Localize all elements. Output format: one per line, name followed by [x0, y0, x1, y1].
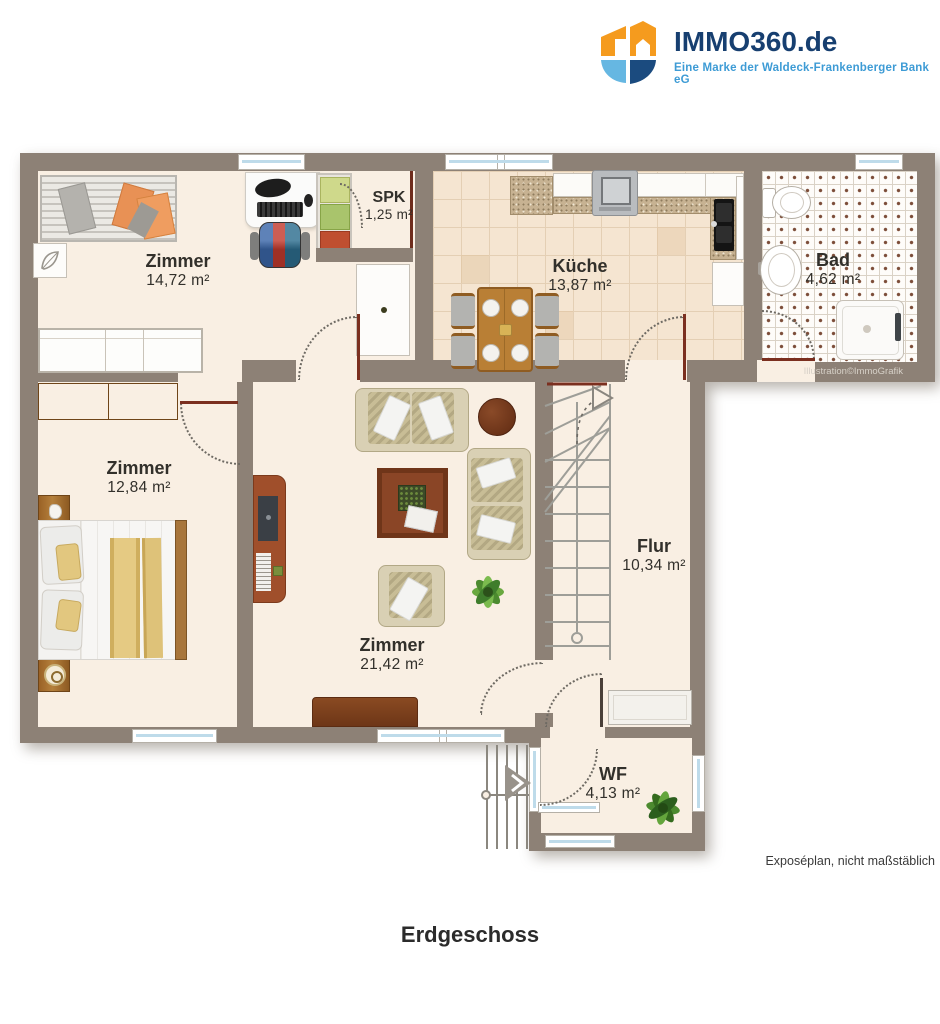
cabinet-knob	[381, 307, 387, 313]
dining-chair	[451, 293, 475, 329]
toilet-bowl-inner	[780, 192, 804, 213]
tv-cabinet	[253, 475, 286, 603]
room-area: 12,84 m²	[69, 479, 209, 497]
window-bedroom	[132, 729, 217, 743]
office-chair	[259, 222, 301, 268]
window-wf-bottom	[545, 835, 615, 848]
label-wf: WF 4,13 m²	[543, 764, 683, 802]
window-zimmer-top	[238, 154, 305, 170]
dresser	[38, 383, 178, 420]
wardrobe	[38, 328, 203, 373]
label-zimmer-bed: Zimmer 12,84 m²	[69, 458, 209, 496]
room-name: Flur	[584, 536, 724, 557]
door-leaf-bedroom	[180, 401, 238, 404]
sink-basin	[716, 226, 732, 243]
toilet-bowl	[772, 186, 811, 219]
dining-chair	[535, 333, 559, 369]
media-shelf	[256, 553, 271, 591]
plant-living	[464, 568, 512, 616]
decor-box	[273, 566, 283, 576]
leaf-icon	[34, 244, 66, 277]
dining-chair	[535, 293, 559, 329]
round-side-table	[478, 398, 516, 436]
room-area: 13,87 m²	[510, 277, 650, 295]
magazine	[404, 505, 438, 533]
bed-blanket	[142, 538, 163, 658]
window-kueche	[445, 154, 553, 170]
table-lamp	[44, 664, 66, 686]
label-flur: Flur 10,34 m²	[584, 536, 724, 574]
shower-drain	[863, 325, 871, 333]
nightstand-decor	[49, 504, 62, 519]
label-zimmer-living: Zimmer 21,42 m²	[322, 635, 462, 673]
accent-cushion	[55, 543, 82, 581]
bed-frame-rail	[175, 520, 187, 660]
room-name: Küche	[510, 256, 650, 277]
label-spk: SPK 1,25 m²	[319, 189, 459, 223]
room-area: 4,62 m²	[763, 271, 903, 289]
kitchen-accent-tile	[657, 227, 685, 255]
accent-cushion	[55, 599, 82, 633]
plate	[482, 344, 500, 362]
coffee-table	[377, 468, 448, 538]
keyboard	[257, 202, 303, 217]
stove-handle	[599, 207, 631, 211]
plate	[511, 299, 529, 317]
table-centerpiece	[499, 324, 512, 336]
tv-stand-dot	[266, 515, 271, 520]
room-name: Zimmer	[69, 458, 209, 479]
shower-column	[895, 313, 901, 341]
chair-armrest	[250, 232, 259, 260]
sideboard	[312, 697, 418, 727]
door-leaf-kueche	[683, 314, 686, 380]
label-bad: Bad 4,62 m²	[763, 250, 903, 288]
door-leaf-bad	[762, 358, 815, 361]
sink-basin	[716, 203, 732, 222]
tall-cabinet	[356, 264, 410, 356]
room-area: 1,25 m²	[319, 207, 459, 222]
label-zimmer-top: Zimmer 14,72 m²	[108, 251, 248, 289]
room-name: Zimmer	[322, 635, 462, 656]
kitchen-accent-tile	[461, 255, 489, 283]
illustration-credit: Illustration©ImmoGrafik	[770, 366, 903, 377]
lamp-inner	[51, 671, 63, 683]
hall-bench-inner	[613, 695, 687, 720]
label-kueche: Küche 13,87 m²	[510, 256, 650, 294]
room-name: Bad	[763, 250, 903, 271]
room-name: SPK	[319, 189, 459, 207]
stove-top	[601, 177, 631, 205]
window-bad	[855, 154, 903, 170]
upper-cabinets	[553, 173, 744, 197]
counter-corner	[510, 176, 553, 215]
door-opening-flur-wf	[550, 727, 605, 738]
plate	[482, 299, 500, 317]
exterior-stairs	[481, 743, 533, 851]
room-area: 10,34 m²	[584, 557, 724, 575]
dining-chair	[451, 333, 475, 369]
hall-bench	[608, 690, 692, 725]
staircase	[541, 382, 615, 664]
room-area: 4,13 m²	[543, 785, 683, 803]
window-living	[377, 729, 505, 743]
plant-side-table	[33, 243, 67, 278]
floorplan-page: IMMO360.de Eine Marke der Waldeck-Franke…	[0, 0, 940, 1024]
tv-screen	[258, 496, 278, 541]
stove	[592, 170, 638, 216]
scale-note: Exposéplan, nicht maßstäblich	[635, 854, 935, 868]
sink	[714, 199, 734, 251]
room-area: 14,72 m²	[108, 272, 248, 290]
room-name: Zimmer	[108, 251, 248, 272]
bed-blanket	[110, 538, 140, 658]
window-wf-right	[692, 755, 705, 812]
chair-armrest	[301, 232, 310, 260]
cabinet-strip	[736, 176, 744, 260]
pantry-wall	[316, 248, 413, 262]
faucet-icon	[711, 221, 717, 227]
plate	[511, 344, 529, 362]
door-leaf-zimmer-top	[357, 314, 360, 380]
floor-title: Erdgeschoss	[0, 922, 940, 948]
dishwasher	[712, 262, 744, 306]
shower	[836, 300, 904, 360]
mouse	[304, 194, 313, 207]
room-area: 21,42 m²	[322, 656, 462, 674]
room-name: WF	[543, 764, 683, 785]
